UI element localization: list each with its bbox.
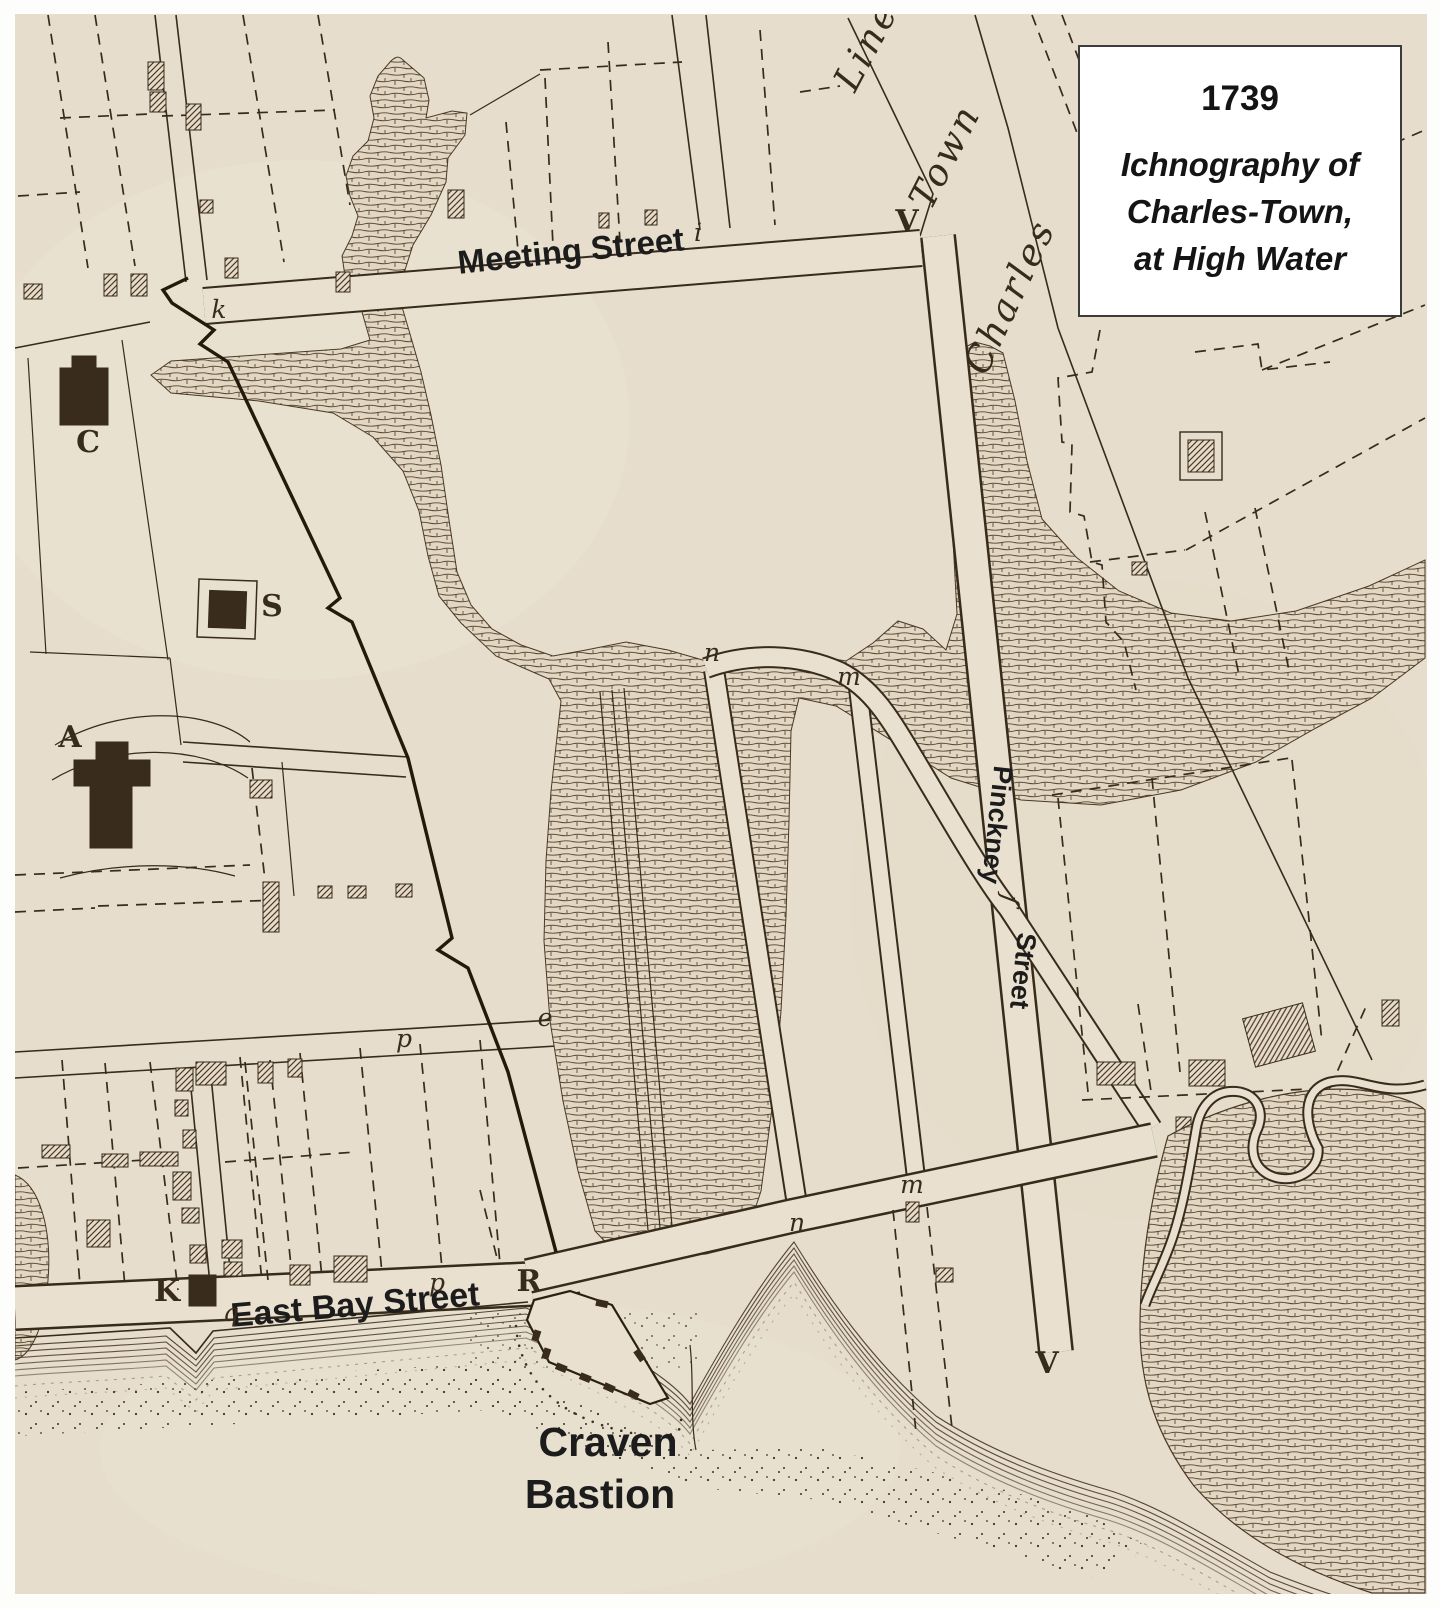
craven-bastion-label-2: Bastion	[525, 1471, 675, 1517]
map-year: 1739	[1080, 79, 1400, 119]
map-letter-n: n	[704, 638, 720, 667]
map-letter-e: e	[538, 1003, 553, 1032]
craven-bastion-label-1: Craven	[538, 1419, 677, 1465]
map-letter-V: V	[1034, 1346, 1059, 1381]
map-letter-A: A	[57, 720, 82, 755]
map-title-line-2: Charles-Town,	[1080, 188, 1400, 235]
map-letter-k: k	[211, 295, 226, 324]
map-title-line-3: at High Water	[1080, 235, 1400, 282]
map-screenshot: Charles Town Line Meeting Street East Ba…	[0, 0, 1440, 1608]
map-letter-p: p	[396, 1024, 412, 1053]
map-letter-q: q	[223, 1298, 239, 1327]
map-letter-S: S	[261, 589, 283, 624]
map-letter-n: n	[789, 1208, 805, 1237]
map-letter-p: p	[429, 1268, 445, 1297]
map-letter-m: m	[837, 662, 861, 691]
map-letter-m: m	[900, 1170, 924, 1199]
map-title-line-1: Ichnography of	[1080, 141, 1400, 188]
map-letter-R: R	[517, 1264, 543, 1299]
map-letter-C: C	[76, 425, 100, 460]
map-letter-i: i	[694, 218, 702, 247]
title-box: 1739 Ichnography of Charles-Town, at Hig…	[1078, 45, 1402, 317]
map-letter-K: K	[154, 1274, 181, 1309]
building-K	[189, 1275, 216, 1306]
map-letter-V: V	[894, 204, 919, 239]
